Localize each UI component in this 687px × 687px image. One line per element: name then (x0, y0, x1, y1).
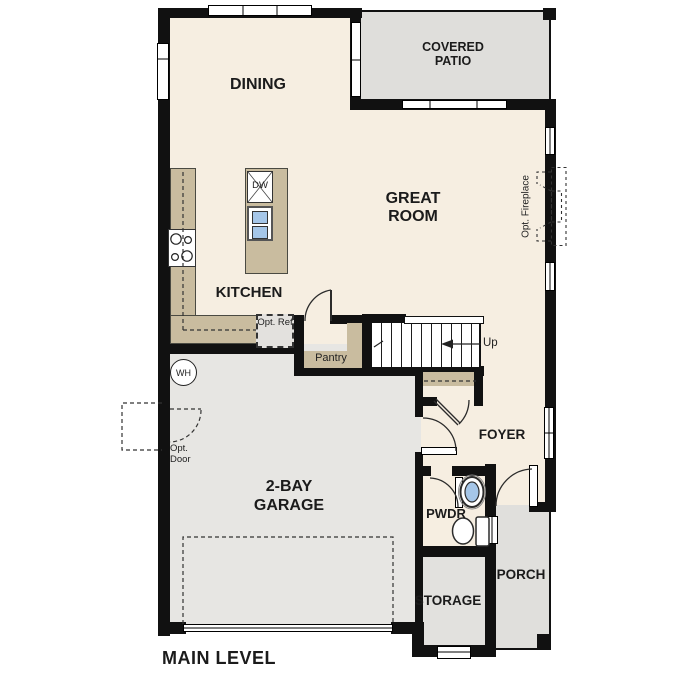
covered-patio-label: COVERED PATIO (408, 40, 498, 68)
optional-fireplace-label: Opt. Fireplace (521, 167, 532, 247)
closet-door-leaf (436, 399, 460, 423)
fireplace-optional-chamfer (540, 222, 551, 228)
pantry-label: Pantry (300, 352, 362, 364)
pedestal-sink-icon (459, 475, 486, 509)
stair-direction-arrow (374, 340, 481, 349)
optional-ref-label: Opt. Ref (257, 317, 293, 328)
cooktop-burners (171, 234, 192, 261)
dining-label: DINING (208, 76, 308, 94)
optional-door-label: Opt. Door (170, 443, 206, 465)
pantry-door-arc (305, 290, 331, 321)
closet-door-arc (459, 400, 469, 424)
fireplace-optional-hearth (537, 172, 551, 184)
storage-label: STORAGE (408, 593, 488, 608)
fireplace-optional-chamfer (540, 185, 551, 191)
plan-annotations (0, 0, 687, 687)
great-room-label: GREAT ROOM (363, 190, 463, 226)
dishwasher-label: DW (246, 181, 274, 191)
window-mullions (158, 6, 553, 652)
optional-door-box (122, 403, 162, 450)
front-door-arc (496, 469, 532, 506)
up-label: Up (483, 337, 498, 350)
fireplace-optional-firebox (552, 191, 562, 222)
porch-label: PORCH (481, 567, 561, 582)
garage-label: 2-BAY GARAGE (244, 477, 334, 515)
kitchen-label: KITCHEN (199, 285, 299, 302)
pwdr-door-arc (430, 478, 458, 507)
fireplace-optional-hearth (537, 229, 551, 241)
fireplace-optional-outline (552, 168, 567, 246)
foyer-label: FOYER (452, 427, 552, 442)
floor-plan: WH (0, 0, 687, 687)
main-level-title: MAIN LEVEL (162, 648, 362, 668)
garage-apron-dashed (183, 537, 393, 624)
optional-door-arc (170, 410, 201, 442)
pwdr-label: PWDR (406, 507, 486, 522)
